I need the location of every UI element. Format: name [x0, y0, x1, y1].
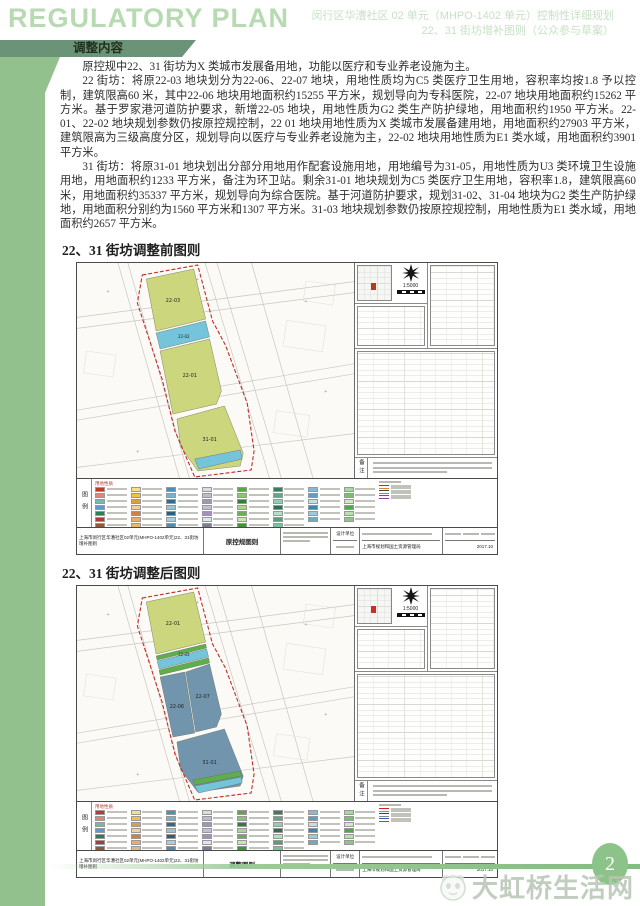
svg-text:22-06: 22-06	[170, 704, 184, 710]
parcel-list-table	[357, 674, 495, 778]
legend-color-swatches	[95, 810, 375, 850]
indicator-table	[430, 265, 495, 346]
indicator-table	[430, 588, 495, 669]
map-after-panel: +++ ++ 22-0122-0522-0622-0731-01	[76, 585, 498, 878]
svg-text:31-01: 31-01	[202, 760, 216, 766]
map-scale: 1:5000	[403, 283, 418, 289]
site-location-marker	[371, 283, 376, 290]
parcel-list-table	[357, 351, 495, 455]
map-after-legend: 图例 用地性质	[77, 801, 497, 850]
comparison-table	[357, 306, 425, 346]
paragraph: 31 街坊：将原31-01 地块划出分部分用地用作配套设施用地，用地编号为31-…	[60, 160, 636, 231]
legend-color-swatches	[95, 487, 375, 527]
scale-bar	[397, 290, 425, 295]
legend-label: 图例	[77, 802, 92, 850]
sheet-date: 2017.10	[445, 541, 495, 553]
scale-bar	[397, 613, 425, 618]
paragraph: 原控规中22、31 街坊为X 类城市发展备用地，功能以医疗和专业养老设施为主。	[60, 60, 636, 74]
design-unit-label: 设计单位	[333, 852, 357, 865]
notes-text	[368, 458, 497, 478]
watermark: 大虹桥生活网	[438, 868, 634, 905]
map-after-canvas: +++ ++ 22-0122-0522-0622-0731-01	[77, 586, 354, 801]
plan-subtitle-line1: 闵行区华漕社区 02 单元（MHPO-1402 单元）控制性详细规划	[311, 9, 614, 24]
map-after-info-panel: 1:5000 备注	[354, 586, 497, 801]
comparison-table	[357, 629, 425, 669]
svg-text:22-07: 22-07	[195, 694, 209, 700]
svg-text:22-02: 22-02	[178, 334, 190, 339]
map-before-legend: 图例 用地性质	[77, 478, 497, 527]
section-banner: 调整内容	[0, 40, 196, 57]
adjustment-text: 原控规中22、31 街坊为X 类城市发展备用地，功能以医疗和专业养老设施为主。 …	[60, 60, 636, 232]
parcel-layer: 22-0122-0522-0622-0731-01	[77, 586, 354, 801]
notes-label: 备注	[355, 781, 368, 801]
map-before-titlebar: 上海市闵行区华漕社区02单元(MHPO-1402单元)22、31街坊 增补图则 …	[77, 527, 497, 554]
map-before-heading: 22、31 街坊调整前图则	[62, 239, 636, 259]
left-accent-bar	[0, 57, 45, 906]
north-compass-icon	[402, 264, 420, 282]
paragraph: 22 街坊：将原22-03 地块划分为22-06、22-07 地块，用地性质均为…	[60, 74, 636, 160]
legend-line-swatches	[379, 485, 411, 500]
legend-line-swatches	[379, 808, 411, 823]
sheet-title-line2: 增补图则	[79, 541, 201, 547]
north-compass-icon	[402, 587, 420, 605]
plan-subtitle: 闵行区华漕社区 02 单元（MHPO-1402 单元）控制性详细规划 22、31…	[311, 9, 614, 39]
sheet-name: 原控规图则	[204, 528, 281, 554]
svg-text:22-03: 22-03	[166, 298, 180, 304]
map-before-info-panel: 1:5000 备注	[354, 263, 497, 478]
panda-logo-icon	[438, 872, 468, 902]
map-before-canvas: +++ ++ 22-0322-0222-0131-01	[77, 263, 354, 478]
svg-text:22-01: 22-01	[183, 373, 197, 379]
main-content: 原控规中22、31 街坊为X 类城市发展备用地，功能以医疗和专业养老设施为主。 …	[60, 60, 636, 878]
map-scale: 1:5000	[403, 606, 418, 612]
plan-subtitle-line2: 22、31 街坊增补图则（公众参与草案）	[311, 24, 614, 39]
svg-text:31-01: 31-01	[202, 437, 216, 443]
notes-text	[368, 781, 497, 801]
legend-section-title: 用地性质	[95, 804, 375, 809]
page-title: REGULATORY PLAN	[8, 3, 289, 34]
notes-label: 备注	[355, 458, 368, 478]
left-accent-corner	[45, 57, 60, 93]
map-before-panel: +++ ++ 22-0322-0222-0131-01	[76, 262, 498, 555]
document-page: REGULATORY PLAN 闵行区华漕社区 02 单元（MHPO-1402 …	[0, 0, 640, 906]
legend-section-title: 用地性质	[95, 481, 375, 486]
svg-text:22-01: 22-01	[166, 621, 180, 627]
watermark-text: 大虹桥生活网	[472, 868, 634, 905]
svg-text:22-05: 22-05	[178, 652, 190, 657]
location-inset-map	[357, 588, 392, 624]
map-after-heading: 22、31 街坊调整后图则	[62, 562, 636, 582]
site-location-marker	[371, 606, 376, 613]
location-inset-map	[357, 265, 392, 301]
design-unit-label: 设计单位	[333, 529, 357, 542]
parcel-layer: 22-0322-0222-0131-01	[77, 263, 354, 478]
legend-label: 图例	[77, 479, 92, 527]
authority-name: 上海市规划和国土资源管理局	[362, 541, 440, 553]
